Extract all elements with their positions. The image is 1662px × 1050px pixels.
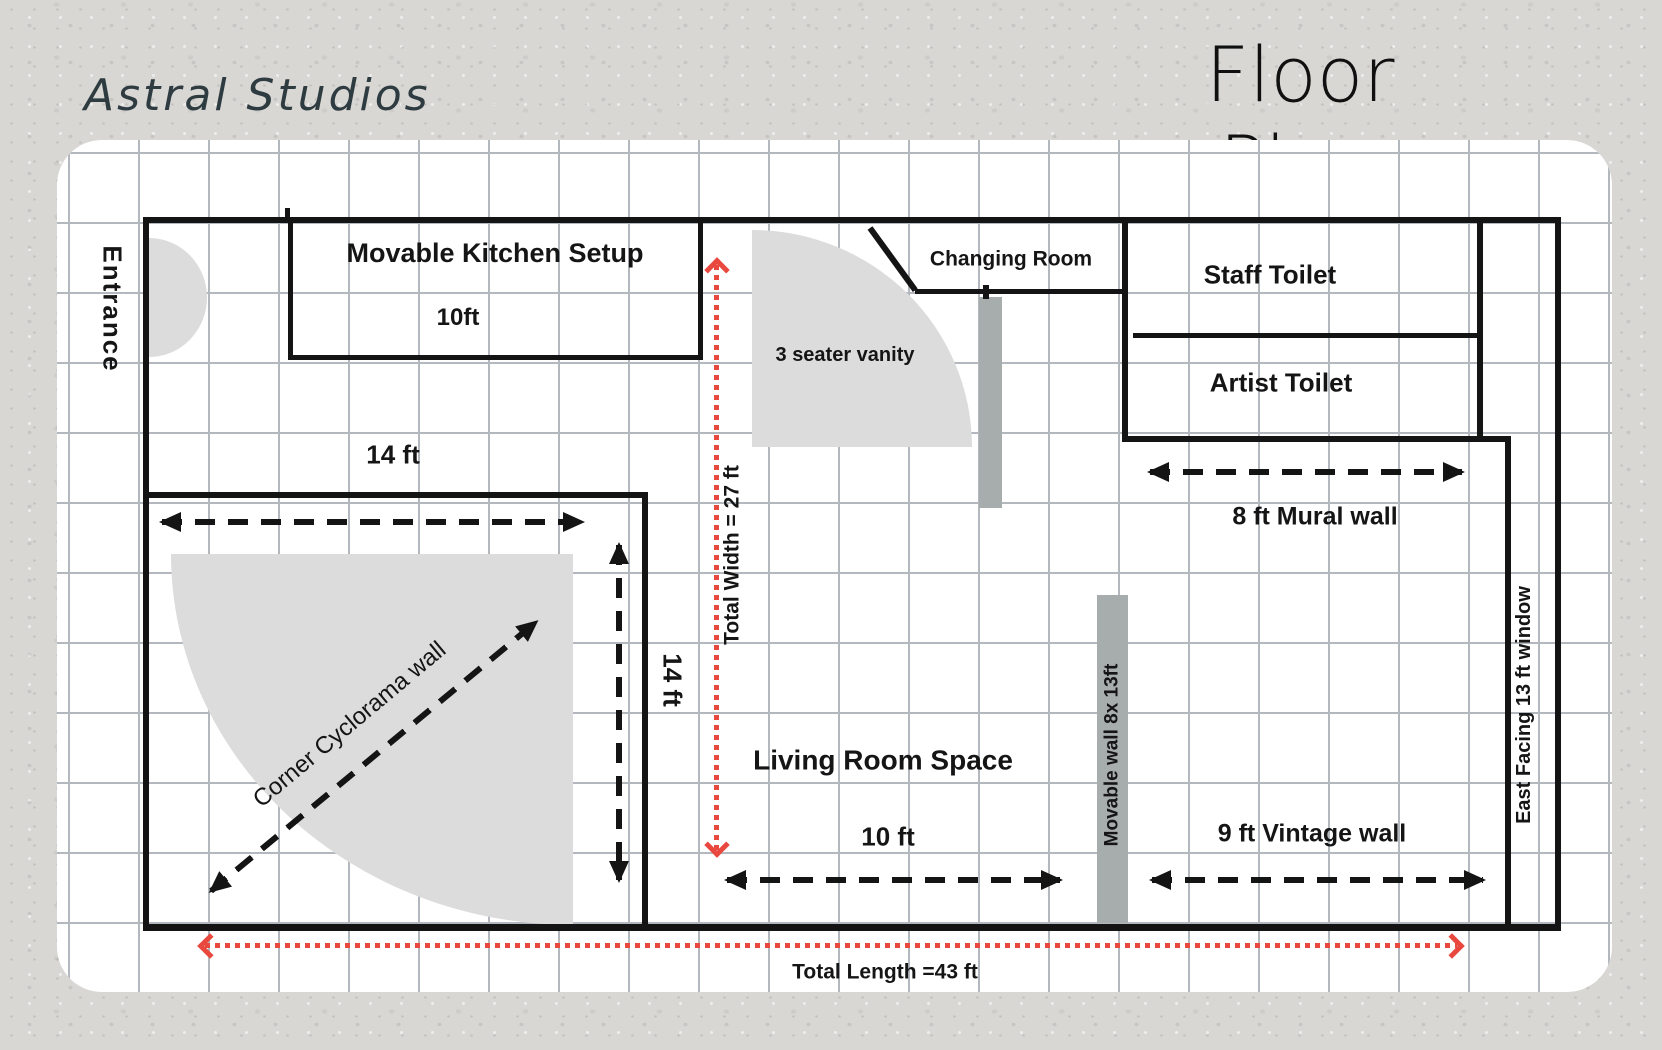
toilet-left-wall [1122,220,1128,441]
living-room-size-label: 10 ft [861,823,914,852]
cyclorama-right-wall [642,492,648,931]
east-window-inner-wall [1505,436,1511,931]
cyclorama-width-label: 14 ft [366,441,419,470]
vintage-wall-label: 9 ft Vintage wall [1218,820,1406,848]
cyclorama-top-wall [143,492,648,498]
kitchen-title-label: Movable Kitchen Setup [346,239,643,269]
bottom-wall [143,924,1561,931]
toilet-right-wall [1477,220,1483,442]
mural-wall-label: 8 ft Mural wall [1232,503,1397,531]
east-window-label: East Facing 13 ft window [1513,586,1535,824]
east-outer-wall [1555,217,1561,931]
kitchen-size-label: 10ft [437,305,480,331]
left-wall [143,217,149,931]
vintage-wall-arrow [1152,877,1483,883]
total-length-arrow [205,943,1457,948]
toilet-bottom-wall [1122,436,1511,442]
toilet-divider-wall [1133,333,1483,338]
cyclorama-width-arrow [162,519,582,525]
staff-toilet-label: Staff Toilet [1204,261,1336,290]
vanity-label: 3 seater vanity [776,344,915,366]
total-length-label: Total Length =43 ft [792,960,978,983]
artist-toilet-label: Artist Toilet [1210,369,1353,398]
changing-room-wall [915,289,1125,294]
studio-brand-title: Astral Studios [84,70,431,121]
cyclorama-height-arrow [616,545,622,880]
total-width-arrow [714,265,719,850]
cyclorama-height-label: 14 ft [658,653,687,706]
entrance-label: Entrance [98,245,127,372]
living-room-width-arrow [727,877,1060,883]
kitchen-wall-tick [285,208,290,220]
changing-room-wall-tick [983,285,989,299]
changing-room-label: Changing Room [930,247,1092,270]
living-room-title-label: Living Room Space [753,746,1013,777]
changing-room-mirror-bar [979,297,1002,508]
floor-plan-canvas: Entrance Movable Kitchen Setup 10ft Chan… [57,140,1612,992]
mural-wall-arrow [1150,469,1462,475]
total-width-label: Total Width = 27 ft [720,465,743,645]
movable-wall-label: Movable wall 8x 13ft [1103,664,1124,847]
